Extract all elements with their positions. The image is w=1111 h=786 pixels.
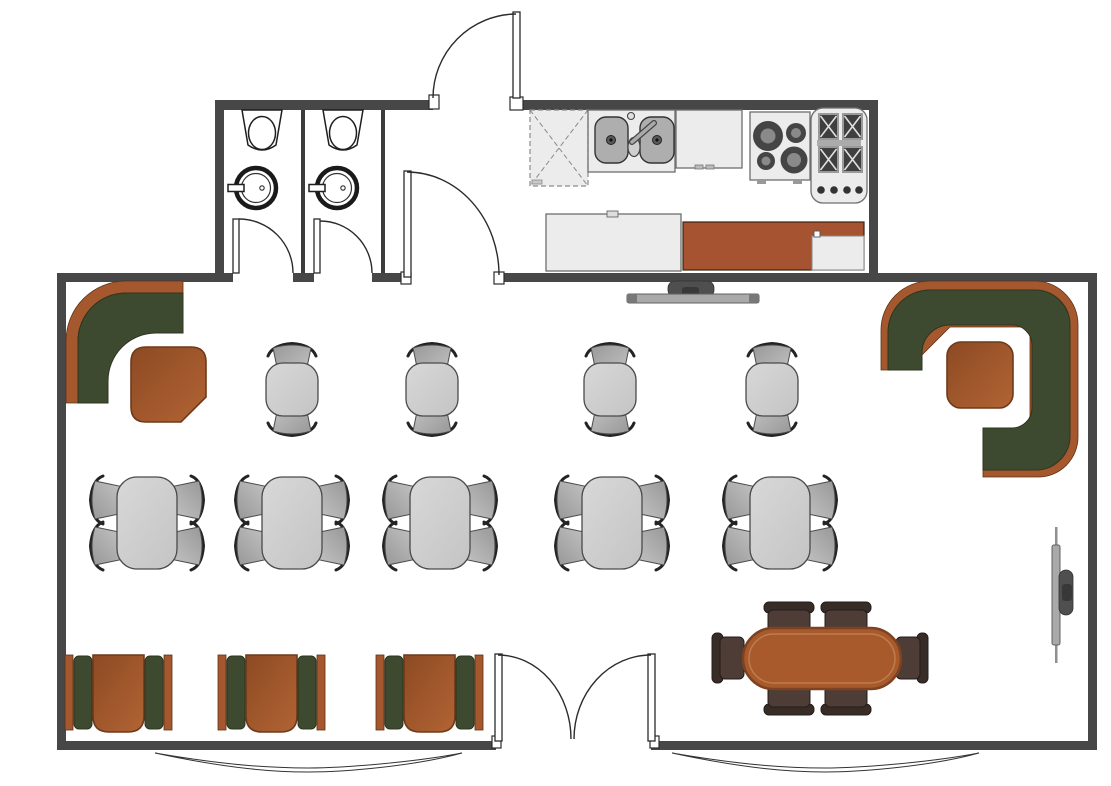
- range-knob: [817, 186, 825, 194]
- tv-screen-cap: [749, 294, 759, 303]
- gas-burner-grate: [819, 147, 838, 172]
- cooktop-foot: [793, 180, 802, 184]
- table-top: [410, 477, 470, 569]
- gas-burner-grate: [843, 114, 862, 139]
- booth-table: [947, 342, 1013, 408]
- cabinet-body: [676, 110, 742, 168]
- door-leaf: [513, 12, 520, 98]
- drain-icon: [609, 138, 612, 141]
- door-jamb: [429, 95, 439, 109]
- door-leaf: [233, 219, 239, 273]
- table-top: [750, 477, 810, 569]
- range-band: [817, 140, 861, 146]
- dishwasher[interactable]: [530, 110, 588, 186]
- counter-handle: [607, 211, 618, 217]
- cabinet-handle: [706, 165, 714, 169]
- wall-kitchen-right: [869, 100, 878, 281]
- window-booth-2[interactable]: [218, 655, 325, 732]
- range-knob: [855, 186, 863, 194]
- burner-center: [787, 153, 801, 167]
- drain-icon: [655, 138, 658, 141]
- door-leaf-left: [495, 654, 502, 741]
- door-leaf-right: [648, 654, 655, 741]
- oval-table-top: [743, 628, 901, 689]
- range-knob: [843, 186, 851, 194]
- table-top: [746, 363, 798, 416]
- table-top: [262, 477, 322, 569]
- tv-antenna: [1055, 527, 1058, 547]
- tv-screen: [627, 294, 759, 303]
- electric-cooktop[interactable]: [750, 112, 810, 184]
- table-top: [266, 363, 318, 416]
- toilet[interactable]: [323, 110, 363, 150]
- dishwasher-foot: [532, 180, 542, 184]
- table-top: [582, 477, 642, 569]
- dark-chair[interactable]: [712, 633, 744, 683]
- toilet[interactable]: [242, 110, 282, 150]
- counter-light: [546, 214, 681, 271]
- kitchen-island-counter[interactable]: [546, 211, 681, 271]
- serving-counter[interactable]: [683, 222, 864, 270]
- burner-center: [791, 128, 801, 138]
- door-leaf: [314, 219, 320, 273]
- window-booth-3[interactable]: [376, 655, 483, 732]
- window-booth-1[interactable]: [65, 655, 172, 732]
- wall-stall-divider-2: [381, 110, 385, 273]
- tv-antenna: [1055, 643, 1058, 663]
- table-top: [117, 477, 177, 569]
- table-top: [406, 363, 458, 416]
- tv-mount-notch: [1062, 584, 1072, 601]
- range-knob: [830, 186, 838, 194]
- wall-dining-right: [1088, 273, 1097, 750]
- counter-insert: [812, 236, 864, 270]
- wall-stall-divider-1: [301, 110, 305, 273]
- burner-center: [761, 129, 776, 144]
- gas-burner-grate: [819, 114, 838, 139]
- cabinet-handle: [695, 165, 703, 169]
- gas-range[interactable]: [811, 108, 867, 203]
- door-leaf: [404, 171, 411, 277]
- wall-restroom-left: [215, 100, 224, 281]
- wall-dining-top-2: [293, 273, 314, 282]
- gas-burner-grate: [843, 147, 862, 172]
- floor-plan-canvas: [0, 0, 1111, 786]
- wall-top-left: [215, 100, 433, 110]
- wall-dining-bottom-2: [651, 741, 1097, 750]
- double-sink[interactable]: [588, 110, 675, 172]
- wall-dining-bottom-1: [57, 741, 496, 750]
- table-top: [584, 363, 636, 416]
- door-jamb: [510, 97, 523, 110]
- base-cabinet[interactable]: [676, 110, 742, 169]
- tv-screen-cap: [627, 294, 637, 303]
- burner-center: [762, 157, 771, 166]
- cooktop-foot: [757, 180, 766, 184]
- counter-insert-handle: [814, 231, 820, 237]
